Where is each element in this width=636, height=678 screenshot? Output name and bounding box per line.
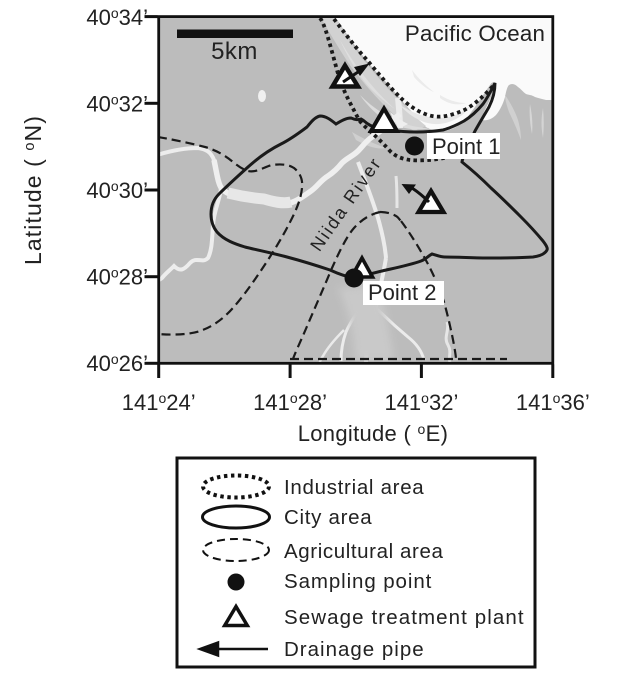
svg-text:141o36’: 141o36’: [516, 390, 590, 415]
svg-text:40o28’: 40o28’: [86, 265, 148, 290]
svg-text:Pacific Ocean: Pacific Ocean: [405, 21, 545, 46]
svg-text:40o30’: 40o30’: [86, 178, 148, 203]
svg-text:141o24’: 141o24’: [122, 390, 196, 415]
svg-text:Longitude ( oE): Longitude ( oE): [298, 421, 449, 446]
svg-text:5km: 5km: [211, 38, 258, 65]
svg-text:Latitude ( oN): Latitude ( oN): [20, 115, 46, 265]
svg-text:Drainage pipe: Drainage pipe: [284, 638, 425, 661]
svg-text:40o26’: 40o26’: [86, 351, 148, 376]
svg-text:Point 2: Point 2: [368, 280, 437, 305]
svg-text:Sampling point: Sampling point: [284, 570, 432, 593]
svg-text:40o34’: 40o34’: [86, 5, 148, 30]
svg-text:Sewage treatment plant: Sewage treatment plant: [284, 606, 525, 629]
svg-text:Point 1: Point 1: [432, 134, 501, 159]
svg-text:Agricultural area: Agricultural area: [284, 540, 443, 563]
svg-text:City area: City area: [284, 506, 372, 529]
svg-text:141o28’: 141o28’: [253, 390, 327, 415]
svg-text:40o32’: 40o32’: [86, 91, 148, 116]
svg-text:141o32’: 141o32’: [384, 390, 458, 415]
svg-text:Industrial area: Industrial area: [284, 476, 424, 499]
